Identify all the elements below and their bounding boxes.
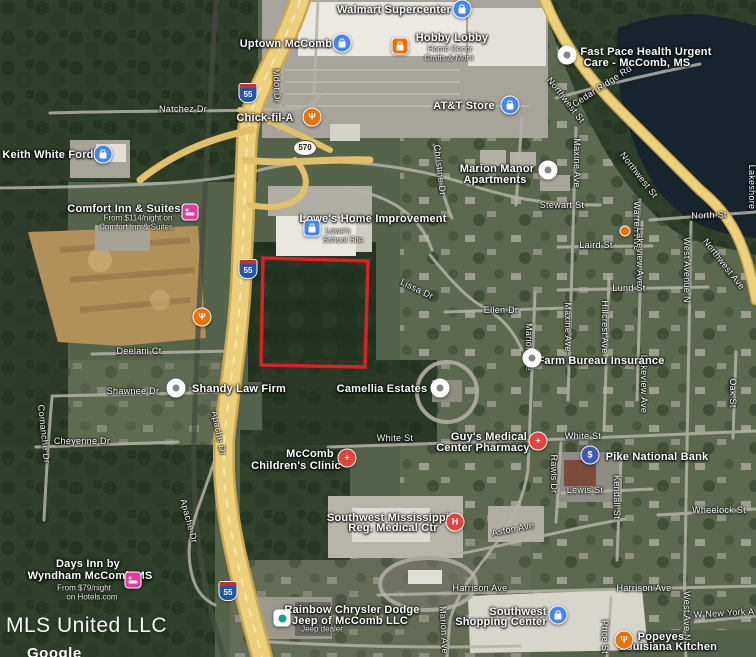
road-label: Aston Ave (491, 520, 535, 538)
shopping-bag-icon (459, 7, 466, 13)
restaurant-poi-pin[interactable]: Ψ (193, 308, 212, 327)
comfort-inn-pin[interactable] (182, 204, 199, 221)
road-label: Comanche Dr (36, 404, 52, 464)
place-label[interactable]: Keith White Ford (2, 149, 93, 161)
guys-medical-pharmacy-pin[interactable]: + (529, 432, 548, 451)
place-label[interactable]: Hobby Lobby (416, 32, 488, 44)
place-sublabel: Home Decor (428, 45, 473, 54)
generic-place-icon (545, 167, 552, 174)
road-label: Harrison Ave (617, 583, 672, 593)
shield-number: 55 (244, 91, 253, 99)
road-label: Hillcrest Ave (600, 300, 610, 353)
shopping-bag-icon (555, 613, 562, 619)
chick-fil-a-pin[interactable]: Ψ (303, 108, 322, 127)
place-label[interactable]: Uptown McComb (240, 38, 332, 50)
place-label[interactable]: Apartments (463, 174, 526, 186)
road-label: Maxine Ave (563, 302, 573, 351)
shopping-bag-icon (397, 44, 404, 50)
keith-white-ford-pin[interactable] (94, 145, 113, 164)
road-label: West Avenue N (682, 237, 692, 303)
place-label[interactable]: Louisiana Kitchen (619, 641, 717, 653)
southwest-shopping-center-pin[interactable] (549, 606, 568, 625)
generic-place-icon (437, 385, 444, 392)
road-label: Marion Ave (438, 606, 450, 654)
mccomb-childrens-clinic-pin[interactable]: + (338, 449, 357, 468)
road-label: Lund St (612, 283, 645, 293)
road-label: Shawnee Dr (107, 386, 160, 396)
place-sublabel: From $114/night on (104, 214, 173, 223)
poi-marker-pin[interactable] (620, 226, 631, 237)
place-label[interactable]: Care - McComb, MS (584, 57, 691, 69)
road-label: Cedar Ridge Rd (570, 63, 633, 109)
road-label: Apache Dr (209, 410, 228, 456)
place-label[interactable]: Pike National Bank (606, 451, 709, 463)
map-canvas[interactable]: Natchez DrMdot DrNorthwest StCedar Ridge… (0, 0, 756, 657)
place-label[interactable]: AT&T Store (433, 100, 495, 112)
interstate-55-shield: 55 (239, 83, 258, 103)
place-sublabel: Jeep dealer (301, 625, 343, 634)
place-sublabel: Lowe's (326, 227, 351, 236)
marion-manor-apartments-pin[interactable] (539, 161, 558, 180)
pike-national-bank-pin[interactable]: $ (581, 446, 600, 465)
google-logo: Google (27, 645, 82, 657)
restaurant-icon: Ψ (620, 636, 627, 645)
road-label: North St (691, 209, 727, 220)
generic-place-icon (529, 355, 536, 362)
road-label: Rawls Dr (549, 455, 559, 494)
road-label: Apache Dr (178, 498, 199, 544)
place-label[interactable]: McComb (286, 448, 334, 460)
medical-cross-icon: + (535, 437, 540, 446)
road-label: Wheelock St (692, 505, 746, 515)
shield-number: 55 (244, 267, 253, 275)
place-label[interactable]: Shandy Law Firm (192, 383, 286, 395)
rainbow-chrysler-dealer-pin[interactable] (274, 610, 291, 627)
sw-regional-medical-pin[interactable]: H (446, 513, 465, 532)
shopping-bag-icon (100, 152, 107, 158)
place-label[interactable]: Reg. Medical Ctr (348, 522, 437, 534)
road-label: Ellen Dr (484, 305, 518, 315)
place-label[interactable]: Walmart Supercenter (337, 4, 451, 16)
att-store-pin[interactable] (501, 96, 520, 115)
hobby-lobby-pin[interactable] (392, 38, 409, 55)
road-label: Kendall St (612, 475, 622, 519)
road-label: Lissa Dr (399, 277, 435, 302)
shield-number: 570 (298, 144, 311, 152)
interstate-55-shield: 55 (219, 581, 238, 601)
place-sublabel: Crafts & More (424, 54, 473, 63)
bank-dollar-icon: $ (587, 451, 592, 460)
road-label: Christine Dr (432, 144, 448, 196)
lowes-home-improvement-pin[interactable] (304, 220, 321, 237)
farm-bureau-insurance-pin[interactable] (523, 349, 542, 368)
restaurant-icon: Ψ (198, 313, 205, 322)
place-label[interactable]: Children's Clinic (251, 460, 341, 472)
road-label: Northwest Ave (701, 237, 747, 292)
place-label[interactable]: Chick-fil-A (236, 112, 293, 124)
place-label[interactable]: Farm Bureau Insurance (537, 355, 664, 367)
place-sublabel: on Hotels.com (66, 593, 117, 602)
hotel-bed-icon (186, 213, 195, 216)
popeyes-pin[interactable]: Ψ (615, 631, 634, 650)
interstate-55-shield: 55 (239, 259, 258, 279)
route-570-shield: 570 (293, 140, 317, 156)
place-sublabel: From $79/night (57, 584, 111, 593)
road-label: Stewart St (540, 200, 585, 210)
place-sublabel: Comfort Inn & Suites (99, 223, 173, 232)
watermark-brand: MLS United LLC (6, 614, 167, 638)
hotel-bed-icon (129, 581, 138, 584)
place-label[interactable]: Center Pharmacy (436, 442, 530, 454)
road-label: Natchez Dr (159, 104, 207, 114)
shandy-law-firm-pin[interactable] (167, 379, 186, 398)
generic-place-icon (173, 385, 180, 392)
road-label: White St (565, 431, 601, 441)
walmart-supercenter-pin[interactable] (453, 0, 472, 19)
hospital-icon: H (452, 518, 459, 527)
place-label[interactable]: Shopping Center (455, 616, 547, 628)
road-label: Laird St (579, 240, 612, 250)
generic-place-icon (564, 52, 571, 59)
road-label: W New York A (693, 606, 754, 619)
road-label: Price St (600, 620, 610, 654)
road-label: Lakeview Ave (635, 228, 645, 286)
place-sublabel: School Site (323, 236, 363, 245)
road-label: Mdot Dr (271, 69, 282, 103)
road-label: Deelani Ct (116, 346, 161, 356)
road-label: Lakeshore (747, 165, 756, 210)
restaurant-icon: Ψ (308, 113, 315, 122)
shopping-bag-icon (309, 226, 316, 232)
shield-number: 55 (224, 589, 233, 597)
road-label: Lewis St (567, 485, 603, 495)
fast-pace-health-pin[interactable] (558, 46, 577, 65)
road-label: Northwest St (618, 150, 660, 200)
days-inn-pin[interactable] (125, 572, 142, 589)
place-label[interactable]: Camellia Estates (337, 383, 428, 395)
shopping-bag-icon (339, 41, 346, 47)
shopping-bag-icon (507, 103, 514, 109)
place-label[interactable]: Lowe's Home Improvement (299, 213, 446, 225)
place-label[interactable]: Days Inn by (56, 558, 120, 570)
road-label: Cheyenne Dr (54, 436, 110, 446)
uptown-mccomb-pin[interactable] (333, 34, 352, 53)
car-dealer-icon (278, 614, 286, 622)
marker-layer: Natchez DrMdot DrNorthwest StCedar Ridge… (0, 0, 756, 657)
road-label: Oak St (728, 378, 738, 407)
road-label: Maxine Ave (572, 138, 582, 187)
medical-cross-icon: + (344, 454, 349, 463)
road-label: Harrison Ave (453, 583, 508, 593)
road-label: White St (377, 433, 413, 443)
camellia-estates-pin[interactable] (431, 379, 450, 398)
